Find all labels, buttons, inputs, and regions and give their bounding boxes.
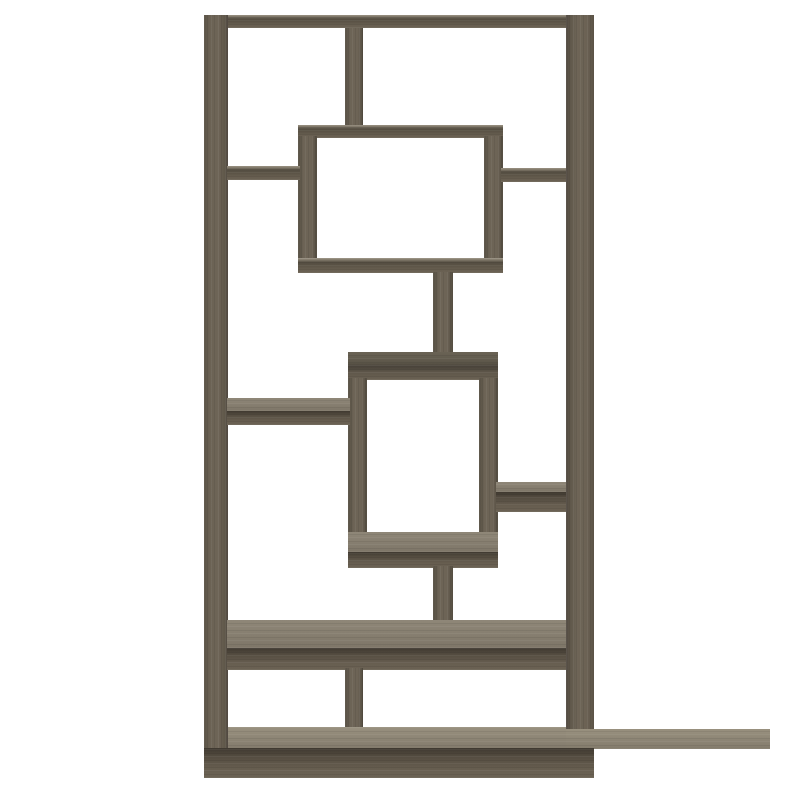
lower-wide-shelf <box>227 620 566 670</box>
upper-right-shelf <box>501 168 566 182</box>
bottom-panel <box>204 727 594 778</box>
upper-display-box-left <box>298 136 317 273</box>
bottom-panel-top-face-right <box>566 729 770 749</box>
upper-left-shelf <box>227 166 300 180</box>
middle-display-box-top <box>348 352 498 380</box>
middle-display-box-right <box>479 378 498 536</box>
middle-display-box <box>348 352 498 568</box>
middle-display-box-bottom-front <box>348 552 498 568</box>
top-center-divider <box>345 28 363 126</box>
lower-wide-shelf-top-face <box>227 620 566 648</box>
middle-left-shelf <box>227 398 350 425</box>
lower-center-post <box>433 566 453 622</box>
bottom-panel-front <box>204 748 594 778</box>
lower-right-shelf-front <box>496 492 566 512</box>
upper-display-box <box>298 125 503 273</box>
upper-center-post <box>433 272 453 354</box>
left-side-panel <box>204 15 228 778</box>
right-side-panel <box>566 15 594 778</box>
bottom-center-divider <box>345 668 363 729</box>
middle-display-box-left <box>348 378 367 536</box>
lower-right-shelf <box>496 482 566 512</box>
lower-right-shelf-top-face <box>496 482 566 492</box>
middle-left-shelf-front <box>227 411 350 425</box>
upper-display-box-bottom <box>298 258 503 273</box>
top-panel <box>204 15 594 28</box>
bookcase-product-image <box>0 0 800 800</box>
middle-display-box-bottom <box>348 532 498 568</box>
middle-left-shelf-top-face <box>227 398 350 411</box>
bottom-panel-top-face <box>228 727 566 749</box>
upper-display-box-right <box>484 136 503 273</box>
lower-wide-shelf-front <box>227 648 566 670</box>
upper-display-box-top <box>298 125 503 138</box>
middle-display-box-bottom-top-face <box>348 532 498 552</box>
